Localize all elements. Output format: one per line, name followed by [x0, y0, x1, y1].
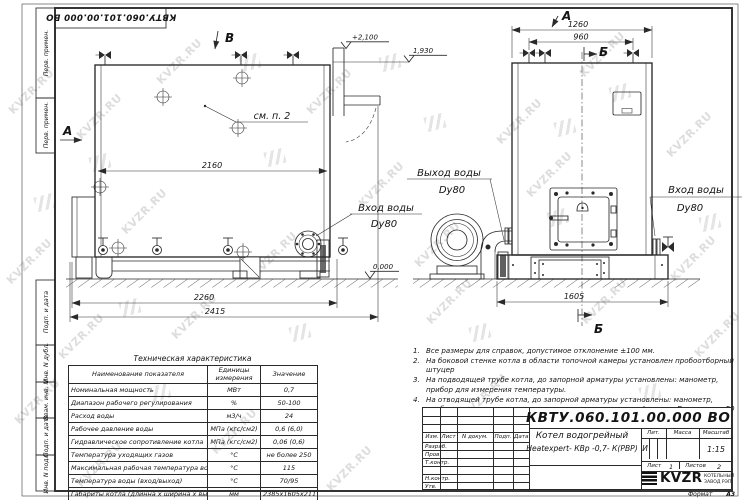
title-block: Изм. Лист N докум. Подп. Дата Разраб. Пр… — [422, 407, 732, 490]
tech-cell: Габариты котла (длинна х ширина х высота… — [69, 488, 208, 500]
tech-cell: Максимальная рабочая температура воды — [69, 462, 208, 475]
tech-table: Наименование показателя Единицы измерени… — [68, 365, 318, 500]
vent-valve-icon — [284, 51, 300, 65]
inlet-dn-label-right: Dy80 — [677, 203, 703, 214]
base-frame — [96, 257, 330, 278]
inlet-label: Вход воды — [358, 203, 414, 214]
view-a-label: А — [561, 9, 571, 23]
tb-row-prov: Пров. — [425, 452, 441, 458]
company-name-line1: КОТЕЛЬНЫЙ — [704, 474, 734, 479]
inlet-label-right: Вход воды — [668, 185, 724, 196]
tech-table-title: Техническая характеристика — [68, 352, 317, 365]
tech-cell: МПа (кгс/см2) — [208, 436, 261, 449]
tech-row: Температура уходящих газов°Сне более 250 — [69, 449, 318, 462]
section-b-label-top: Б — [599, 45, 608, 59]
drain-valve-icon — [152, 238, 162, 255]
see-note-callout: см. п. 2 — [254, 111, 291, 122]
tech-cell: 24 — [261, 410, 318, 423]
tech-cell: м3/ч — [208, 410, 261, 423]
elevation-top: +2,100 — [352, 34, 378, 42]
drawing-sheet: KVZR.RU KVZR.RU KVZR.RU KVZR.RU KVZR.RU … — [0, 0, 750, 500]
section-b-label-bottom: Б — [594, 322, 603, 336]
drain-valve-icon — [223, 238, 233, 255]
outlet-dn-label: Dy80 — [439, 185, 465, 196]
tb-scale-value: 1:15 — [699, 445, 733, 454]
datum-target-icon — [154, 88, 172, 106]
tech-header-row: Наименование показателя Единицы измерени… — [69, 366, 318, 384]
tech-cell: Расход воды — [69, 410, 208, 423]
tech-cell: % — [208, 397, 261, 410]
elevation-zero: 0,000 — [373, 263, 394, 271]
end-base-frame — [497, 255, 668, 279]
margin-label: Инв. N дубл. — [42, 343, 50, 384]
tech-cell: 0,06 (0,6) — [261, 436, 318, 449]
tech-cell: мм — [208, 488, 261, 500]
left-view-dimensions: 2160 2260 2415 — [70, 106, 378, 322]
vent-valve-icon — [96, 51, 112, 65]
vent-valve-icon — [624, 49, 640, 63]
tech-cell: Температура воды (вход/выход) — [69, 475, 208, 488]
tb-lit-label: Лит. — [641, 430, 666, 436]
margin-label: Перв. примен. — [43, 30, 50, 76]
format-label: Формат А3 — [688, 491, 735, 498]
tech-cell: °С — [208, 449, 261, 462]
top-stamp-doc-number: КВТУ.060.101.00.000 ВО — [46, 12, 177, 22]
tech-cell: 2385х1605х2117 — [261, 488, 318, 500]
section-a-label: А — [62, 124, 72, 138]
outlet-label: Выход воды — [417, 168, 481, 179]
tech-cell: не более 250 — [261, 449, 318, 462]
tech-characteristics: Техническая характеристика Наименование … — [68, 352, 317, 500]
datum-target-icon — [91, 178, 109, 196]
dim-2260: 2260 — [194, 293, 214, 302]
note-number: 2. — [413, 356, 426, 375]
blower-fan-icon — [430, 214, 484, 279]
tech-row: Гидравлическое сопротивление котлаМПа (к… — [69, 436, 318, 449]
tech-cell: 70/95 — [261, 475, 318, 488]
tb-lit-value: И — [641, 444, 649, 453]
tb-sheet-label: Лист — [647, 463, 661, 469]
datum-target-icon — [229, 119, 247, 137]
tech-row: Рабочее давление водыМПа (кгс/см2)0,6 (6… — [69, 423, 318, 436]
note-number: 3. — [413, 375, 426, 394]
tech-cell: 0,7 — [261, 384, 318, 397]
vent-valve-icon — [520, 49, 536, 63]
tb-product-name: Котел водогрейный — [526, 431, 638, 441]
elevation-shell: 1,930 — [413, 47, 434, 55]
margin-label: Перв. примен. — [43, 102, 50, 148]
note-item: 1.Все размеры для справок, допустимое от… — [413, 346, 737, 355]
tb-col-ndocum: N докум. — [458, 434, 492, 440]
margin-label: Инв. N подл. — [43, 453, 50, 494]
furnace-door — [549, 188, 617, 250]
tech-row: Диапазон рабочего регулирования%50-100 — [69, 397, 318, 410]
note-text: Все размеры для справок, допустимое откл… — [426, 346, 737, 355]
tb-col-podp: Подп. — [494, 434, 512, 440]
tech-cell: 50-100 — [261, 397, 318, 410]
boiler-end-view: Выход воды Dy80 Вход воды Dy80 — [407, 9, 742, 336]
inlet-flange-icon — [295, 231, 321, 257]
note-number: 1. — [413, 346, 426, 355]
tb-row-tkontr: Т.контр. — [425, 460, 449, 466]
tech-header-cell: Значение — [261, 366, 318, 384]
datum-target-icon — [233, 69, 251, 87]
tech-row: Габариты котла (длинна х ширина х высота… — [69, 488, 318, 500]
margin-label: Подп. и дата — [43, 291, 50, 333]
tech-cell: Температура уходящих газов — [69, 449, 208, 462]
tb-sheets-label: Листов — [685, 463, 706, 469]
tb-mass-label: Масса — [666, 430, 699, 436]
tb-product-model: Heatexpert- КВр -0,7- К(РВР) — [526, 444, 638, 453]
tb-row-nkontr: Н.контр. — [425, 476, 450, 482]
tech-cell: °С — [208, 462, 261, 475]
tech-row: Номинальная мощностьМВт0,7 — [69, 384, 318, 397]
dim-2160: 2160 — [202, 161, 222, 170]
format-word: Формат — [688, 491, 712, 498]
note-text: На боковой стенке котла в области топочн… — [426, 356, 737, 375]
kvzr-logo-text: KVZR — [660, 470, 702, 486]
tech-cell: МПа (кгс/см2) — [208, 423, 261, 436]
datum-target-icon — [109, 239, 127, 257]
note-item: 3.На подводящей трубе котла, до запорной… — [413, 375, 737, 394]
boiler-side-view: Вход воды Dy80 см. п. 2 А В +2,100 1,930 — [60, 31, 447, 322]
margin-label: Взам. инв. N — [43, 380, 50, 421]
tb-doc-number: КВТУ.060.101.00.000 ВО — [526, 408, 730, 428]
inlet-dn-label: Dy80 — [371, 219, 397, 230]
tech-cell: Диапазон рабочего регулирования — [69, 397, 208, 410]
tech-cell: 0,6 (6,0) — [261, 423, 318, 436]
tb-row-razrab: Разраб. — [425, 444, 447, 450]
tb-row-utv: Утв. — [425, 484, 437, 490]
drain-valve-icon — [338, 238, 348, 255]
drain-valve-icon — [98, 238, 108, 255]
tech-header-cell: Наименование показателя — [69, 366, 208, 384]
margin-label: Подп. и дата — [43, 415, 50, 457]
vent-valve-icon — [232, 51, 248, 65]
tech-row: Расход водым3/ч24 — [69, 410, 318, 423]
inlet-stub — [653, 237, 674, 255]
dim-1605: 1605 — [564, 292, 584, 301]
tech-row: Максимальная рабочая температура воды°С1… — [69, 462, 318, 475]
tech-cell: Номинальная мощность — [69, 384, 208, 397]
tech-cell: °С — [208, 475, 261, 488]
dim-960: 960 — [573, 33, 588, 42]
note-text: На подводящей трубе котла, до запорной а… — [426, 375, 737, 394]
tech-cell: Рабочее давление воды — [69, 423, 208, 436]
company-name-line2: ЗАВОД РЭП — [704, 480, 731, 485]
tech-header-cell: Единицы измерения — [208, 366, 261, 384]
tech-cell: Гидравлическое сопротивление котла — [69, 436, 208, 449]
tb-col-list: Лист — [441, 434, 456, 440]
tech-cell: 115 — [261, 462, 318, 475]
tb-scale-label: Масштаб — [699, 430, 733, 436]
format-value: А3 — [726, 491, 735, 498]
kvzr-logo-icon — [642, 472, 657, 485]
tech-cell: МВт — [208, 384, 261, 397]
tb-sheets-value: 2 — [717, 463, 721, 471]
tb-col-izm: Изм. — [424, 434, 440, 440]
dim-2415: 2415 — [205, 307, 225, 316]
elevation-marks: +2,100 1,930 0,000 — [333, 34, 447, 279]
tech-row: Температура воды (вход/выход)°С70/95 — [69, 475, 318, 488]
note-item: 2.На боковой стенке котла в области топо… — [413, 356, 737, 375]
view-b-label: В — [225, 31, 234, 45]
vent-valve-icon — [536, 49, 552, 63]
